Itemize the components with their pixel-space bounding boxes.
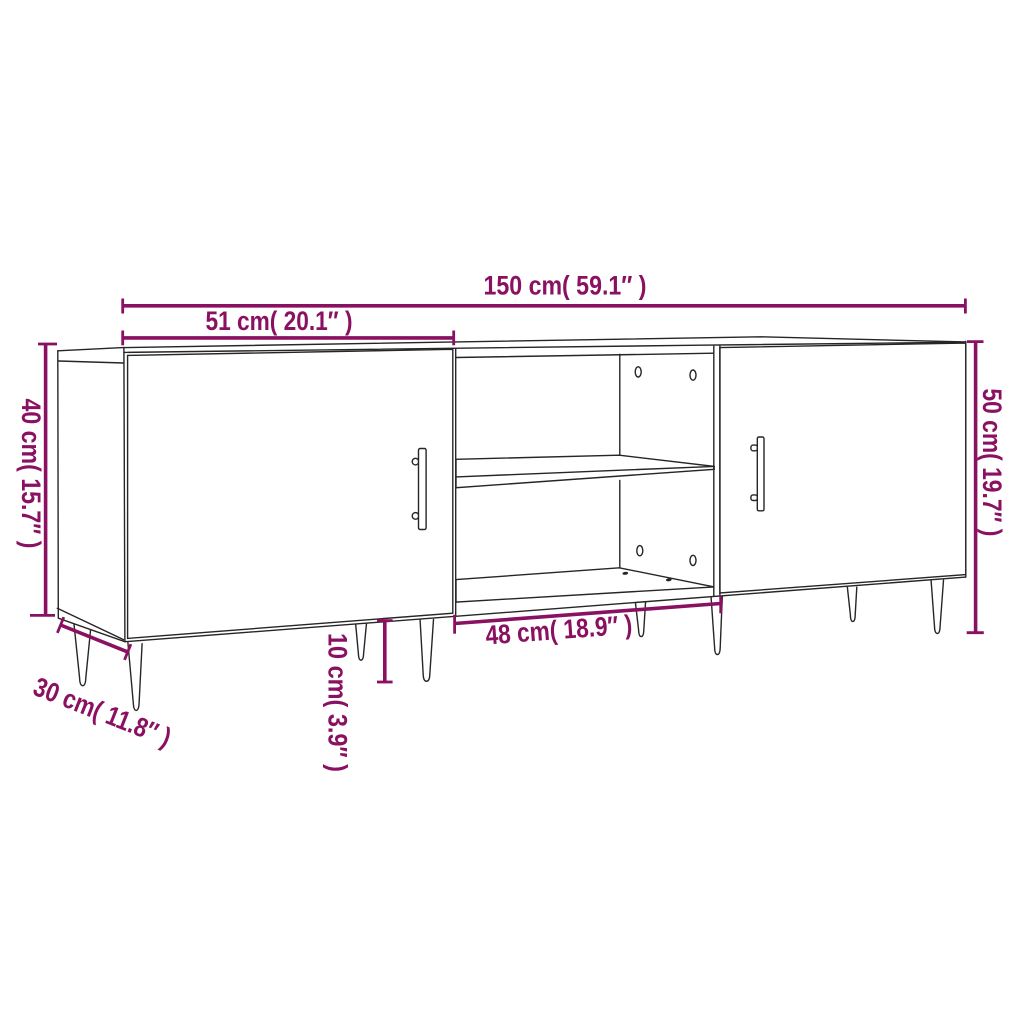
svg-text:51 cm( 20.1″ ): 51 cm( 20.1″ ) <box>206 306 353 336</box>
svg-text:50 cm( 19.7″ ): 50 cm( 19.7″ ) <box>977 388 1007 536</box>
svg-text:40 cm( 15.7″ ): 40 cm( 15.7″ ) <box>16 399 46 549</box>
svg-text:10 cm( 3.9″ ): 10 cm( 3.9″ ) <box>322 633 352 772</box>
svg-text:150 cm( 59.1″ ): 150 cm( 59.1″ ) <box>484 271 647 301</box>
